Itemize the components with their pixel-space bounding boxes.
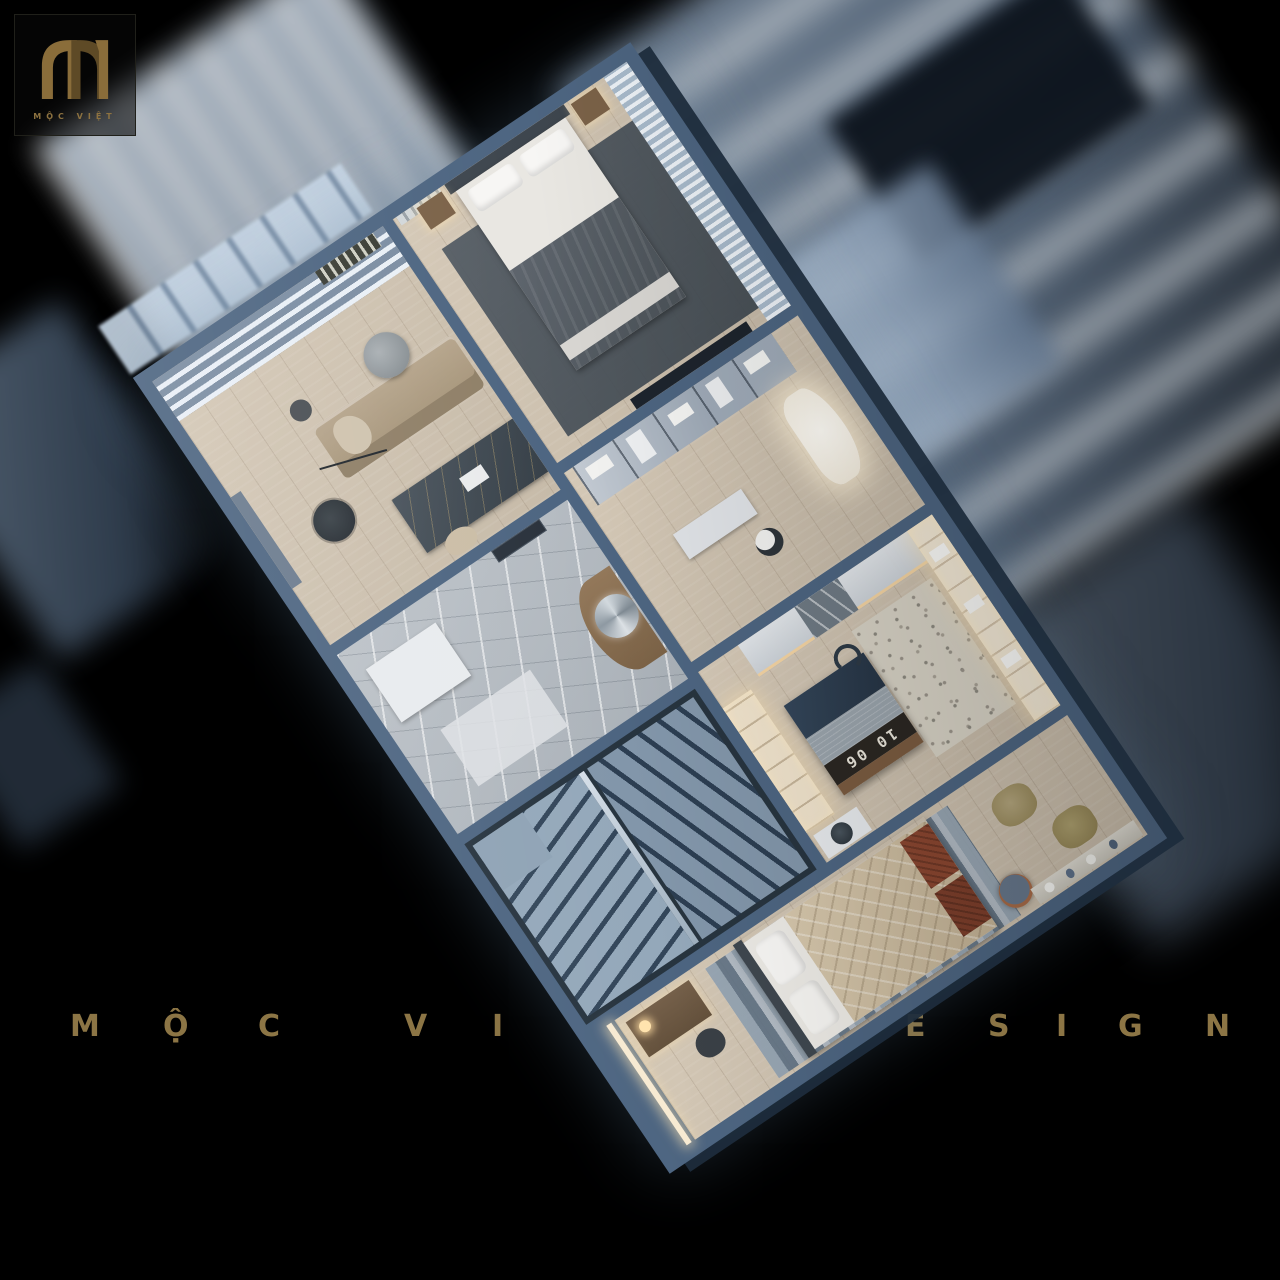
watermark-letter: I xyxy=(492,1012,503,1042)
floorplan: 10 06 xyxy=(133,42,1167,1173)
brand-logo: M MỘC VIỆT xyxy=(14,14,136,136)
wavy-light-mirror xyxy=(776,379,872,491)
folded-linen xyxy=(963,594,985,614)
desk-chair xyxy=(690,1023,731,1063)
blurred-dark-panel xyxy=(826,0,1153,264)
hanging-clothes xyxy=(705,376,734,408)
watermark-letter: C xyxy=(258,1012,280,1042)
decor-plate xyxy=(1043,880,1057,894)
shoe-cabinet xyxy=(366,622,471,722)
watermark-letter: I xyxy=(1056,1012,1067,1042)
nightstand xyxy=(571,87,610,125)
desk-lamp xyxy=(637,1018,654,1035)
folded-linen xyxy=(929,543,951,563)
render-canvas: M Ộ C V I Ệ T D E S I G N xyxy=(0,0,1280,1280)
nightstand xyxy=(417,191,456,229)
logo-monogram-icon xyxy=(29,27,121,101)
watermark-letter: E xyxy=(905,1012,926,1042)
hanging-clothes xyxy=(625,429,657,464)
watermark-letter: M xyxy=(70,1012,100,1042)
watermark-letter: S xyxy=(988,1012,1010,1042)
decor-vase xyxy=(1107,838,1119,851)
watermark-letter: V xyxy=(404,1012,427,1042)
wash-basin xyxy=(826,818,857,849)
folded-linen xyxy=(1000,649,1022,669)
watermark-letter: N xyxy=(1205,1012,1230,1042)
armchair xyxy=(986,777,1044,833)
logo-brand-text: MỘC VIỆT xyxy=(15,112,135,121)
hall-mat xyxy=(440,670,568,787)
decor-plate xyxy=(1084,852,1098,866)
arc-floor-lamp xyxy=(305,492,363,550)
vanity-bench xyxy=(673,489,758,560)
watermark-letter: Ộ xyxy=(163,1012,189,1042)
watermark-letter: G xyxy=(1118,1012,1143,1042)
folded-clothes xyxy=(743,350,771,375)
folded-clothes xyxy=(667,402,694,426)
side-cabinet xyxy=(231,491,302,589)
decor-vase xyxy=(1064,867,1076,880)
ottoman-stool xyxy=(750,522,789,561)
side-table xyxy=(286,395,317,426)
blurred-structure-bottom-left xyxy=(0,659,122,850)
folded-clothes xyxy=(585,454,614,480)
